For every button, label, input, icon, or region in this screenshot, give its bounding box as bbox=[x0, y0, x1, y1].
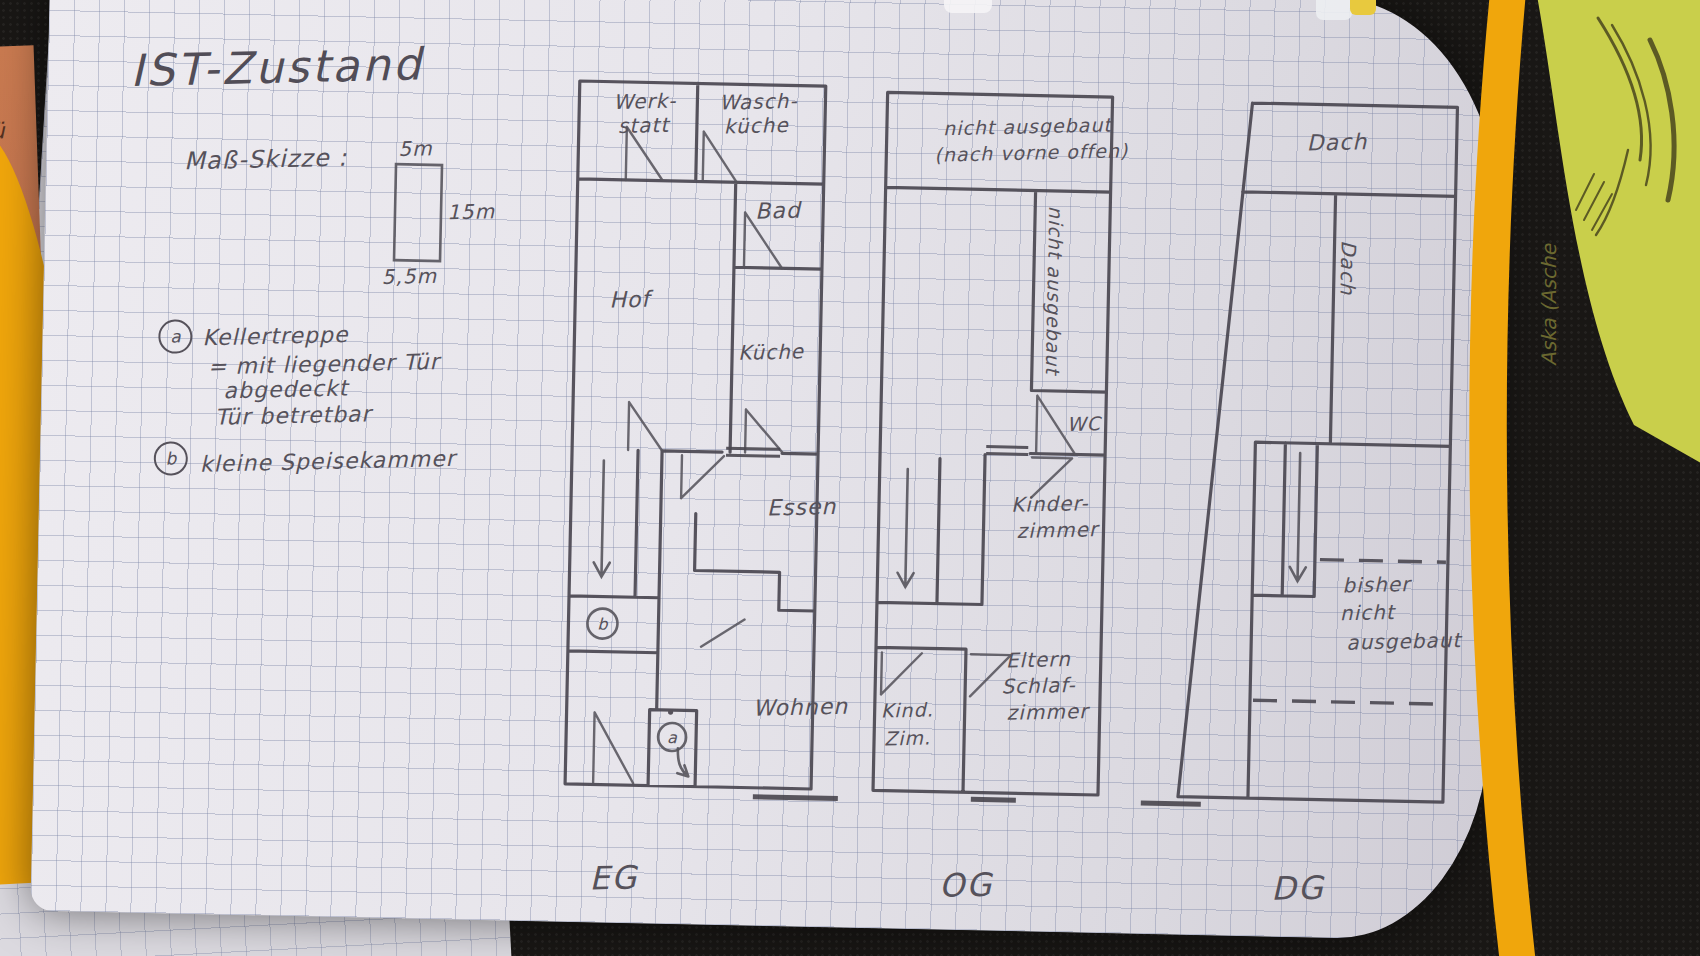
og-attic-note-line2: (nach vorne offen) bbox=[934, 139, 1128, 165]
eg-entrance-mark bbox=[753, 797, 838, 799]
eg-room-hof: Hof bbox=[609, 287, 650, 313]
og-floor-label: OG bbox=[939, 866, 994, 905]
eg-cellar-arrow bbox=[677, 748, 689, 776]
og-room-eltern-line1: Eltern bbox=[1006, 647, 1071, 672]
eg-room-werkstatt-line1: Werk- bbox=[613, 89, 676, 114]
eg-passage-mark bbox=[726, 448, 780, 456]
dg-dashed-line-lower bbox=[1253, 700, 1443, 704]
og-room-eltern-line2: Schlaf- bbox=[1001, 673, 1076, 699]
og-room-wc: WC bbox=[1067, 412, 1102, 435]
dg-note-line1: bisher bbox=[1342, 572, 1410, 598]
og-room-kindzim-line1: Kind. bbox=[880, 698, 933, 721]
og-attic-note-line1: nicht ausgebaut bbox=[943, 113, 1112, 139]
paper-tab-white bbox=[1316, 0, 1352, 20]
og-stair-arrow bbox=[897, 469, 915, 587]
dg-floor-label: DG bbox=[1271, 869, 1325, 908]
eg-room-bad: Bad bbox=[755, 198, 801, 224]
eg-walls bbox=[565, 81, 826, 789]
og-passage-mark bbox=[986, 447, 1028, 455]
og-side-note-vertical: nicht ausgebaut bbox=[1042, 206, 1068, 375]
dg-note-line2: nicht bbox=[1340, 600, 1395, 625]
og-room-kinderzimmer-line1: Kinder- bbox=[1011, 491, 1089, 517]
og-walls bbox=[873, 92, 1113, 795]
eg-stair-arrow bbox=[593, 460, 611, 576]
eg-marker-a-letter: a bbox=[667, 728, 678, 747]
dg-entrance-mark bbox=[1141, 803, 1201, 804]
paper-tab-yellow bbox=[1350, 0, 1376, 15]
og-room-kinderzimmer-line2: zimmer bbox=[1016, 517, 1098, 543]
dg-stair-arrow bbox=[1289, 453, 1308, 581]
og-entrance-mark bbox=[971, 799, 1016, 800]
dg-dach-top: Dach bbox=[1306, 129, 1367, 155]
sticky-note-text: Aska (Asche bbox=[1537, 242, 1561, 366]
eg-room-waschkueche-line2: küche bbox=[724, 113, 789, 138]
eg-floor-label: EG bbox=[589, 858, 639, 897]
orange-note-fragment: lü bbox=[0, 118, 5, 144]
og-room-kindzim-line2: Zim. bbox=[884, 726, 931, 749]
dg-dach-side-vertical: Dach bbox=[1335, 240, 1360, 296]
og-room-eltern-line3: zimmer bbox=[1006, 699, 1088, 725]
eg-room-wohnen: Wohnen bbox=[752, 694, 848, 721]
sticky-note bbox=[1536, 0, 1700, 466]
eg-room-werkstatt-line2: statt bbox=[618, 113, 670, 138]
paper-tab-white bbox=[944, 0, 992, 13]
main-graph-paper-sheet: IST-Zustand Maß-Skizze : 5m 15m 5,5m a K… bbox=[30, 0, 1504, 941]
dg-walls bbox=[1178, 102, 1457, 802]
eg-room-kueche: Küche bbox=[738, 339, 804, 364]
right-edge-composition: Aska (Asche bbox=[1440, 0, 1700, 956]
eg-room-essen: Essen bbox=[767, 494, 837, 521]
eg-room-waschkueche-line1: Wasch- bbox=[719, 89, 798, 115]
eg-marker-b-letter: b bbox=[597, 614, 608, 633]
yellow-folder-edge-right bbox=[1469, 0, 1536, 956]
dg-dashed-line-upper bbox=[1320, 560, 1446, 563]
scale-sketch-rectangle bbox=[394, 164, 442, 261]
